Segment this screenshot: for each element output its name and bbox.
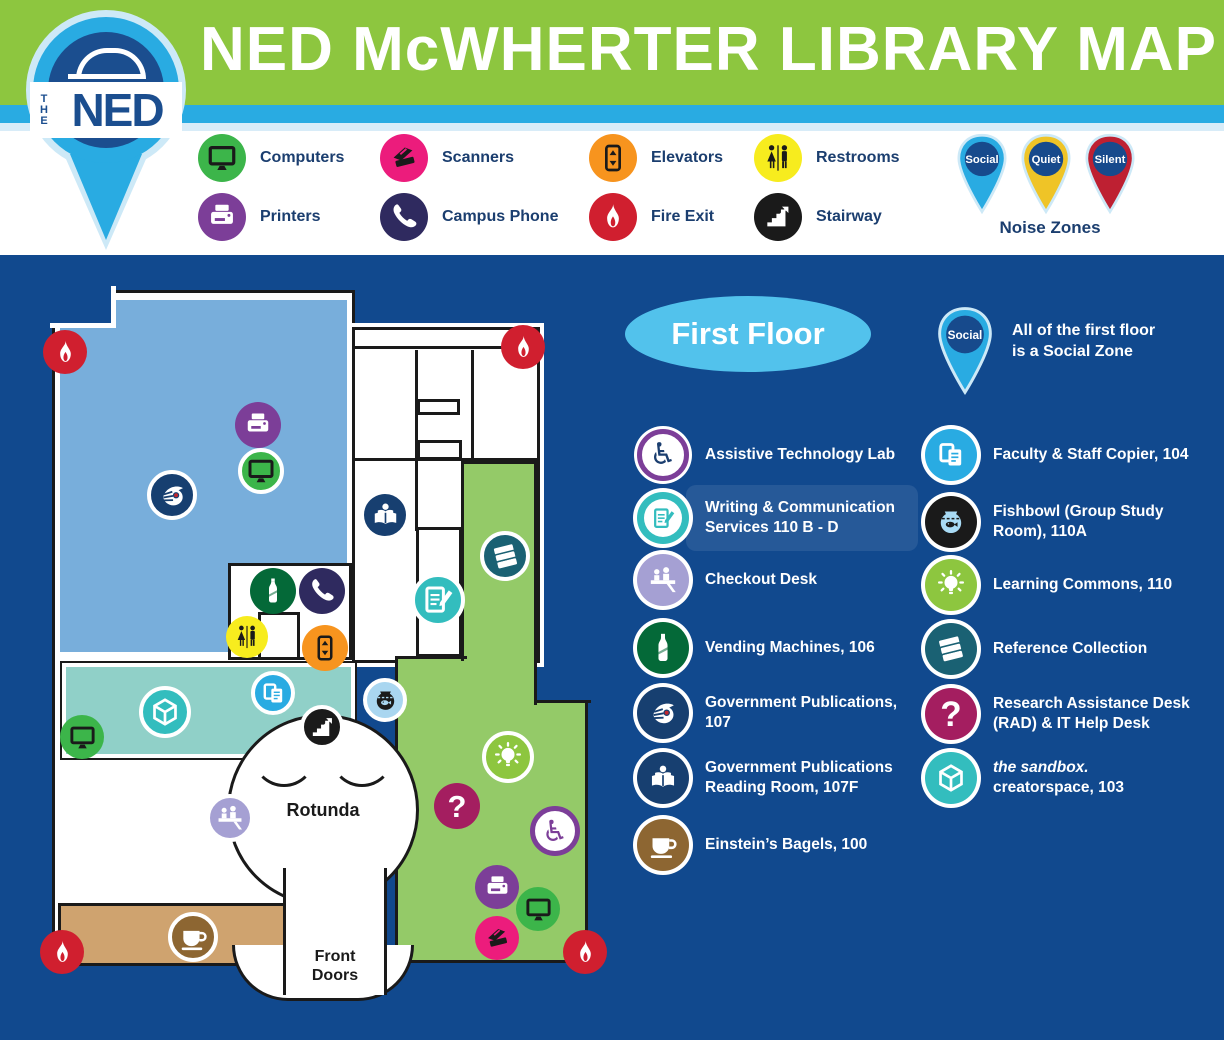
desk-badge bbox=[637, 554, 689, 606]
printer-marker bbox=[235, 402, 281, 448]
reading-badge bbox=[637, 752, 689, 804]
phone-icon bbox=[388, 201, 420, 233]
room-notch-a bbox=[417, 399, 460, 415]
noise-pin-quiet: Quiet bbox=[1018, 132, 1074, 221]
wheelchair-icon: ♿ bbox=[650, 440, 677, 470]
key-item-government-publications-107: Government Publications, 107 bbox=[637, 687, 917, 739]
scanner-marker bbox=[475, 916, 519, 960]
pencil-badge bbox=[637, 492, 689, 544]
computer-badge bbox=[198, 134, 246, 182]
reading-icon bbox=[369, 499, 402, 532]
legend-item-computers: Computers bbox=[198, 134, 344, 182]
books-icon bbox=[489, 540, 522, 573]
flame-marker bbox=[40, 930, 84, 974]
key-item-learning-commons-110: Learning Commons, 110 bbox=[925, 559, 1205, 611]
page-title: NED McWHERTER LIBRARY MAP bbox=[200, 14, 1210, 85]
key-item-label: Government Publications, 107 bbox=[705, 693, 917, 733]
computer-icon bbox=[524, 895, 553, 924]
bulb-icon bbox=[934, 568, 968, 602]
key-item-label: Vending Machines, 106 bbox=[705, 638, 917, 658]
scanner-icon bbox=[483, 924, 512, 953]
fishbowl-marker bbox=[363, 678, 407, 722]
legend-item-stairway: Stairway bbox=[754, 193, 882, 241]
key-item-vending-machines-106: Vending Machines, 106 bbox=[637, 622, 917, 674]
stairs-icon bbox=[762, 201, 794, 233]
logo-the-text: THE bbox=[36, 94, 52, 127]
phone-badge bbox=[380, 193, 428, 241]
legend-item-scanners: Scanners bbox=[380, 134, 514, 182]
floor-label-oval: First Floor bbox=[625, 296, 871, 372]
computer-marker bbox=[60, 715, 104, 759]
logo-wordmark: THE NED bbox=[30, 82, 182, 138]
wheelchair-marker: ♿ bbox=[530, 806, 580, 856]
elevator-icon bbox=[597, 142, 629, 174]
stairs-badge bbox=[754, 193, 802, 241]
social-zone-pin: Social bbox=[934, 305, 996, 397]
flame-marker bbox=[563, 930, 607, 974]
key-item-government-publications-reading-room-107f: Government Publications Reading Room, 10… bbox=[637, 752, 917, 804]
key-item-checkout-desk: Checkout Desk bbox=[637, 554, 917, 606]
coffee-icon bbox=[646, 828, 680, 862]
desk-marker bbox=[206, 794, 254, 842]
key-item-einstein-s-bagels-100: Einstein’s Bagels, 100 bbox=[637, 819, 917, 871]
library-dome-base bbox=[68, 74, 144, 79]
svg-text:Quiet: Quiet bbox=[1032, 154, 1061, 166]
scanner-icon bbox=[388, 142, 420, 174]
printer-marker bbox=[475, 865, 519, 909]
flame-icon bbox=[51, 338, 80, 367]
noise-zones-legend: Noise Zones Social Quiet Silent bbox=[950, 128, 1150, 252]
bulb-marker bbox=[482, 731, 534, 783]
elevator-marker bbox=[302, 625, 348, 671]
stairs-icon bbox=[308, 713, 337, 742]
question-marker: ? bbox=[434, 783, 480, 829]
key-item-label: Writing & Communication Services 110 B -… bbox=[705, 498, 917, 538]
computer-icon bbox=[206, 142, 238, 174]
legend-item-campus-phone: Campus Phone bbox=[380, 193, 558, 241]
bottle-icon bbox=[646, 631, 680, 665]
social-zone-note: All of the first floor is a Social Zone bbox=[1012, 321, 1155, 363]
copier-marker bbox=[251, 671, 295, 715]
key-item-label: Reference Collection bbox=[993, 639, 1205, 659]
computer-icon bbox=[68, 723, 97, 752]
legend-item-label: Restrooms bbox=[816, 149, 900, 167]
desk-icon bbox=[646, 563, 680, 597]
question-badge: ? bbox=[925, 688, 977, 740]
noise-zone-pin-silent: Silent bbox=[1082, 132, 1138, 216]
desk-icon bbox=[214, 802, 246, 834]
key-item-creatorspace-103: the sandbox.creatorspace, 103 bbox=[925, 752, 1205, 804]
flame-icon bbox=[597, 201, 629, 233]
svg-text:Silent: Silent bbox=[1095, 154, 1126, 166]
key-item-writing-communication-services-110-b-d: Writing & Communication Services 110 B -… bbox=[637, 492, 917, 544]
printer-icon bbox=[243, 410, 273, 440]
printer-icon bbox=[206, 201, 238, 233]
flame-marker bbox=[501, 325, 545, 369]
printer-icon bbox=[483, 873, 512, 902]
phone-marker bbox=[299, 568, 345, 614]
key-item-fishbowl-group-study-room-110a: Fishbowl (Group Study Room), 110A bbox=[925, 496, 1205, 548]
cube-icon bbox=[148, 695, 182, 729]
key-item-label: the sandbox.creatorspace, 103 bbox=[993, 758, 1205, 798]
logo-pin-tail bbox=[70, 154, 142, 240]
restrooms-marker bbox=[226, 616, 268, 658]
bottle-badge bbox=[637, 622, 689, 674]
restrooms-icon bbox=[233, 623, 261, 651]
fishbowl-icon bbox=[934, 505, 968, 539]
coffee-badge bbox=[637, 819, 689, 871]
room-notch-b bbox=[417, 440, 462, 460]
key-item-label: Assistive Technology Lab bbox=[705, 445, 917, 465]
building-notch bbox=[50, 286, 116, 328]
copier-icon bbox=[259, 679, 288, 708]
legend-item-label: Computers bbox=[260, 149, 344, 167]
key-item-research-assistance-desk-rad-it-help-desk: ?Research Assistance Desk (RAD) & IT Hel… bbox=[925, 688, 1205, 740]
key-item-label: Einstein’s Bagels, 100 bbox=[705, 835, 917, 855]
first-floor-map: Rotunda Front Doors First Floor Social A… bbox=[0, 255, 1224, 1040]
eagle-badge bbox=[637, 687, 689, 739]
noise-zone-pin-social: Social bbox=[934, 305, 996, 397]
reading-marker bbox=[360, 490, 410, 540]
coffee-marker bbox=[168, 912, 218, 962]
noise-pin-silent: Silent bbox=[1082, 132, 1138, 221]
flame-icon bbox=[571, 938, 600, 967]
pencil-marker bbox=[411, 573, 465, 627]
floor-label: First Floor bbox=[671, 316, 824, 352]
key-item-faculty-staff-copier-104: Faculty & Staff Copier, 104 bbox=[925, 429, 1205, 481]
key-item-reference-collection: Reference Collection bbox=[925, 623, 1205, 675]
stairs-marker bbox=[300, 705, 344, 749]
bottle-marker bbox=[250, 568, 296, 614]
svg-text:Social: Social bbox=[948, 329, 983, 342]
pencil-icon bbox=[650, 505, 677, 532]
computer-marker bbox=[516, 887, 560, 931]
legend-item-restrooms: Restrooms bbox=[754, 134, 900, 182]
flame-icon bbox=[509, 333, 538, 362]
noise-zones-label: Noise Zones bbox=[950, 218, 1150, 238]
legend-item-label: Scanners bbox=[442, 149, 514, 167]
scanner-badge bbox=[380, 134, 428, 182]
books-icon bbox=[934, 632, 968, 666]
legend-item-label: Campus Phone bbox=[442, 208, 558, 226]
svg-text:Social: Social bbox=[965, 154, 998, 166]
computer-icon bbox=[246, 456, 276, 486]
wheelchair-icon: ♿ bbox=[542, 817, 568, 846]
coffee-icon bbox=[177, 921, 210, 954]
computer-marker bbox=[238, 448, 284, 494]
key-item-label: Fishbowl (Group Study Room), 110A bbox=[993, 502, 1205, 542]
key-item-label: Government Publications Reading Room, 10… bbox=[705, 758, 917, 798]
flame-icon bbox=[48, 938, 77, 967]
rotunda-label: Rotunda bbox=[253, 800, 393, 821]
fishbowl-icon bbox=[371, 686, 400, 715]
cube-badge bbox=[925, 752, 977, 804]
eagle-icon bbox=[646, 696, 680, 730]
legend-item-label: Elevators bbox=[651, 149, 723, 167]
question-mark-icon: ? bbox=[448, 791, 467, 822]
copier-badge bbox=[925, 429, 977, 481]
legend-item-fire-exit: Fire Exit bbox=[589, 193, 714, 241]
key-item-label: Learning Commons, 110 bbox=[993, 575, 1205, 595]
library-map-poster: NED McWHERTER LIBRARY MAP THE NED Comput… bbox=[0, 0, 1224, 1040]
ned-logo-pin: THE NED bbox=[24, 4, 188, 250]
noise-pin-social: Social bbox=[954, 132, 1010, 221]
bulb-badge bbox=[925, 559, 977, 611]
fishbowl-badge bbox=[925, 496, 977, 548]
cube-marker bbox=[139, 686, 191, 738]
phone-icon bbox=[307, 576, 337, 606]
writing-icon-inner bbox=[644, 499, 682, 537]
bottle-icon bbox=[258, 576, 288, 606]
key-item-label: Faculty & Staff Copier, 104 bbox=[993, 445, 1205, 465]
legend-item-label: Printers bbox=[260, 208, 320, 226]
printer-badge bbox=[198, 193, 246, 241]
flame-badge bbox=[589, 193, 637, 241]
legend-item-printers: Printers bbox=[198, 193, 320, 241]
cube-icon bbox=[934, 761, 968, 795]
legend-item-elevators: Elevators bbox=[589, 134, 723, 182]
noise-zone-pin-quiet: Quiet bbox=[1018, 132, 1074, 216]
question-mark-icon: ? bbox=[940, 697, 961, 732]
wheelchair-badge: ♿ bbox=[637, 429, 689, 481]
restrooms-badge bbox=[754, 134, 802, 182]
bulb-icon bbox=[491, 740, 525, 774]
elevator-icon bbox=[310, 633, 340, 663]
pencil-icon bbox=[420, 582, 456, 618]
elevator-badge bbox=[589, 134, 637, 182]
front-doors-label: Front Doors bbox=[285, 947, 385, 985]
key-item-label: Research Assistance Desk (RAD) & IT Help… bbox=[993, 694, 1205, 734]
books-badge bbox=[925, 623, 977, 675]
books-marker bbox=[480, 531, 530, 581]
eagle-icon bbox=[156, 479, 189, 512]
noise-zone-pin-social: Social bbox=[954, 132, 1010, 216]
reading-icon bbox=[646, 761, 680, 795]
key-item-assistive-technology-lab: ♿Assistive Technology Lab bbox=[637, 429, 917, 481]
legend-item-label: Fire Exit bbox=[651, 208, 714, 226]
flame-marker bbox=[43, 330, 87, 374]
eagle-marker bbox=[147, 470, 197, 520]
key-item-label: Checkout Desk bbox=[705, 570, 917, 590]
copier-icon bbox=[934, 438, 968, 472]
legend-item-label: Stairway bbox=[816, 208, 882, 226]
restrooms-icon bbox=[762, 142, 794, 174]
logo-ned-text: NED bbox=[52, 83, 182, 137]
